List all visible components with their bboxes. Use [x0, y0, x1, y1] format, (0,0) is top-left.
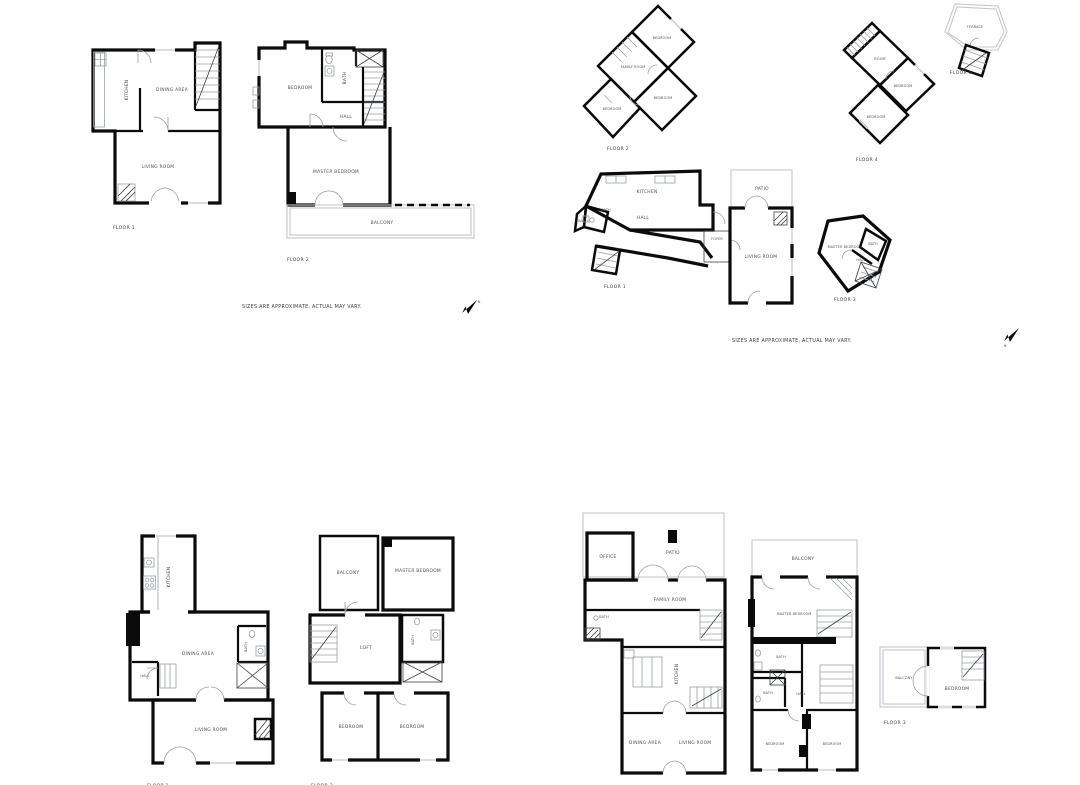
- floorplan-top-right-floor-5: TERRACE FLOOR 5: [945, 4, 1007, 76]
- hall-walls: [132, 662, 158, 696]
- kitchen-fixtures: [624, 650, 662, 687]
- room-label: HALL: [856, 258, 865, 262]
- walls: [383, 538, 453, 610]
- room-label: BEDROOM: [766, 742, 785, 746]
- room-label: BATH: [601, 208, 611, 212]
- sofa-hatch: [118, 184, 135, 201]
- sink-icon: [325, 66, 334, 76]
- floorplan-top-right-floor-2: BEDROOM FAMILY ROOM BEDROOM BEDROOM FLOO…: [584, 6, 696, 152]
- room-label: HALL: [340, 114, 353, 120]
- stairs: [817, 578, 852, 637]
- stairs: [310, 625, 337, 662]
- floorplan-top-left-floor-1: KITCHEN DINING AREA LIVING ROOM FLOOR 1: [93, 43, 220, 231]
- wall-chunk: [802, 714, 811, 729]
- interior-wall: [752, 644, 802, 707]
- room-label: MASTER BEDROOM: [777, 612, 812, 616]
- room-label: DINING AREA: [629, 740, 661, 746]
- floor-label: FLOOR 3: [834, 297, 856, 303]
- floorplan-collage: KITCHEN DINING AREA LIVING ROOM FLOOR 1: [0, 0, 1080, 785]
- floorplan-bottom-left-floor-1: KITCHEN DINING AREA BATH HALL LIVING ROO…: [126, 536, 273, 785]
- foyer-walls: [704, 231, 730, 262]
- patio-walls: [583, 513, 724, 577]
- room-label: HALL: [140, 674, 149, 678]
- floor-label: FLOOR 1: [604, 284, 626, 290]
- room-label: BEDROOM: [945, 686, 970, 692]
- room-label: BALCONY: [371, 220, 394, 226]
- door-arc: [842, 250, 851, 259]
- room-label: KITCHEN: [166, 567, 172, 588]
- hatch-square: [255, 719, 271, 739]
- room-label: HALL: [637, 215, 650, 221]
- pillar: [668, 530, 677, 543]
- toilet-icon: [326, 53, 333, 64]
- room-label: LIVING ROOM: [142, 164, 175, 170]
- room-label: MASTER BEDROOM: [828, 245, 863, 249]
- room-label: ROOM: [874, 57, 885, 61]
- floor-label: FLOOR 1: [113, 225, 135, 231]
- floorplan-top-left-floor-2: BEDROOM BATH HALL MASTER BEDROOM BALCONY…: [253, 42, 474, 263]
- room-label: PATIO: [755, 186, 769, 192]
- room-label: BEDROOM: [867, 115, 886, 119]
- bath-fixtures: [754, 650, 762, 702]
- walls: [93, 43, 220, 203]
- room-label: BATH: [776, 655, 786, 659]
- stairs: [820, 665, 853, 703]
- room-label: BATH: [578, 219, 588, 223]
- stairs: [844, 23, 880, 58]
- kitchen-fixtures: [144, 537, 159, 610]
- room-label: PATIO: [666, 550, 680, 556]
- floorplan-bottom-left-floor-2: BALCONY MASTER BEDROOM LOFT BATH BEDROOM…: [310, 536, 453, 785]
- room-label: KITCHEN: [124, 80, 130, 101]
- room-label: LOFT: [360, 645, 372, 651]
- room-label: BATH: [342, 72, 348, 85]
- door-arc: [745, 196, 768, 303]
- wall-chunk: [288, 192, 296, 205]
- room-label: BEDROOM: [653, 36, 672, 40]
- walls: [819, 216, 890, 291]
- room-label: BEDROOM: [288, 85, 313, 91]
- bath-fixtures: [238, 626, 268, 662]
- window: [604, 19, 681, 103]
- window: [604, 19, 681, 103]
- room-label: FOYER: [711, 237, 723, 241]
- room-label: OFFICE: [599, 554, 616, 560]
- floorplan-top-right-floor-3: MASTER BEDROOM BATH HALL FLOOR 3: [819, 216, 890, 303]
- room-label: BEDROOM: [823, 742, 842, 746]
- window: [155, 50, 208, 203]
- room-label: MASTER BEDROOM: [395, 568, 441, 574]
- room-label: LIVING ROOM: [679, 740, 712, 746]
- disclaimer-text: SIZES ARE APPROXIMATE, ACTUAL MAY VARY.: [242, 304, 362, 310]
- floor-label: FLOOR 2: [287, 257, 309, 263]
- floorplan-top-right-floor-4: ROOM BEDROOM BEDROOM FLOOR 4: [844, 23, 934, 163]
- door-arc: [970, 38, 979, 45]
- room-label: BATH: [599, 615, 609, 619]
- room-label: BEDROOM: [339, 724, 364, 730]
- room-label: MASTER BEDROOM: [313, 169, 359, 175]
- north-label: N: [478, 300, 481, 304]
- floor-label: FLOOR 3: [884, 720, 906, 726]
- stairs: [962, 651, 984, 680]
- room-label: BALCONY: [337, 570, 360, 576]
- floorplan-bottom-right-floor-1: OFFICE PATIO FAMILY ROOM BATH KITCHEN DI…: [583, 513, 725, 773]
- floor-label: FLOOR 5: [950, 70, 972, 76]
- room-label: KITCHEN: [637, 189, 658, 195]
- north-label: N: [1004, 344, 1007, 348]
- room-label: BATH: [763, 691, 773, 695]
- room-label: BATH: [868, 242, 878, 246]
- room-label: BALCONY: [792, 556, 815, 562]
- room-label: LIVING ROOM: [745, 254, 778, 260]
- stairs: [700, 610, 722, 640]
- wall-chunk: [748, 599, 755, 627]
- floorplan-bottom-right-floor-2: BALCONY MASTER BEDROOM BATH BATH HALL BE…: [748, 540, 857, 770]
- room-label: DINING AREA: [156, 87, 188, 93]
- kitchen-counter: [94, 52, 107, 127]
- window: [149, 50, 208, 203]
- hatch-square: [774, 212, 787, 225]
- door-arc: [638, 565, 706, 580]
- room-label: BEDROOM: [894, 84, 913, 88]
- stairs: [356, 50, 385, 127]
- floorplan-bottom-right-floor-3: BALCONY BEDROOM FLOOR 3: [880, 647, 985, 726]
- wall-chunk: [126, 613, 140, 646]
- floor-label: FLOOR 2: [607, 146, 629, 152]
- room-label: FAMILY ROOM: [621, 65, 646, 69]
- room-label: TERRACE: [966, 25, 984, 29]
- room-label: BEDROOM: [654, 96, 673, 100]
- stairs: [592, 246, 620, 274]
- disclaimer-text: SIZES ARE APPROXIMATE, ACTUAL MAY VARY.: [732, 338, 852, 344]
- north-arrow-icon: N: [462, 300, 481, 314]
- room-label: DINING AREA: [182, 651, 214, 657]
- room-label: BEDROOM: [400, 724, 425, 730]
- door-arc: [913, 666, 928, 696]
- room-label: KITCHEN: [674, 664, 680, 685]
- floorplan-top-right-floor-1: KITCHEN HALL BATH BATH FOYER PATIO LIVIN…: [575, 170, 792, 303]
- stairs: [195, 43, 220, 110]
- stairs: [690, 687, 722, 708]
- door-arc: [138, 50, 179, 203]
- bath: [402, 615, 443, 662]
- kitchen-counter: [606, 176, 675, 183]
- stairs: [403, 662, 442, 682]
- north-arrow-icon: N: [1004, 328, 1019, 348]
- stairs: [237, 663, 268, 688]
- room-label: BATH: [411, 635, 415, 645]
- room-label: BATH: [244, 642, 248, 652]
- closet-stairs: [160, 664, 176, 688]
- room-label: BALCONY: [895, 676, 913, 680]
- wall-band: [752, 637, 836, 644]
- floor-label: FLOOR 4: [856, 157, 878, 163]
- room-label: BEDROOM: [603, 107, 622, 111]
- room-label: LIVING ROOM: [195, 727, 228, 733]
- bath: [585, 616, 600, 640]
- wall-chunk: [799, 745, 807, 757]
- walls: [850, 85, 908, 143]
- room-label: HALL: [796, 692, 805, 696]
- wall-chunk: [383, 538, 392, 547]
- room-label: FAMILY ROOM: [654, 597, 687, 603]
- door-arc: [315, 191, 343, 205]
